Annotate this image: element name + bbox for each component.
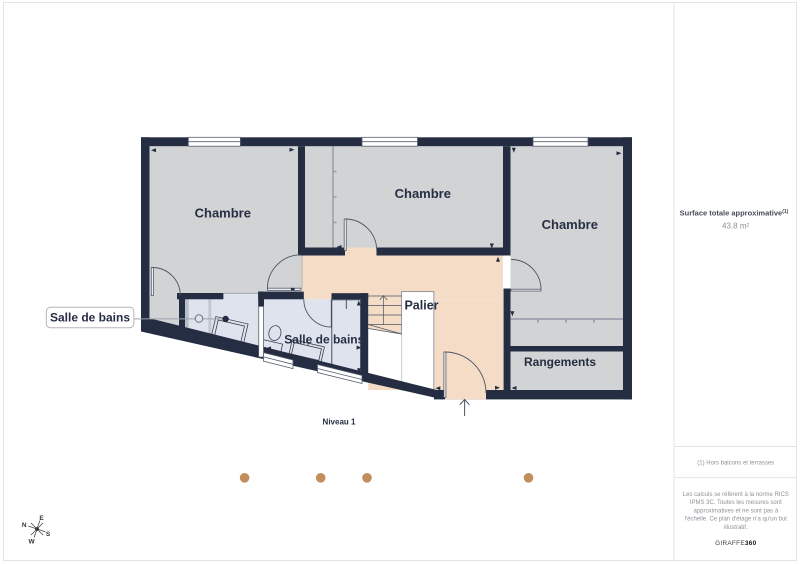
- svg-text:W: W: [29, 539, 36, 546]
- svg-text:Niveau 1: Niveau 1: [323, 417, 356, 426]
- svg-text:Les calculs se réfèrent à la n: Les calculs se réfèrent à la norme RICS: [683, 492, 789, 498]
- svg-text:Salle de bains: Salle de bains: [284, 333, 364, 347]
- svg-text:IPMS 3C. Toutes les mesures so: IPMS 3C. Toutes les mesures sont: [690, 500, 782, 506]
- svg-text:approximatives et ne sont pas: approximatives et ne sont pas à: [693, 508, 778, 514]
- svg-text:Palier: Palier: [404, 299, 438, 313]
- svg-text:Salle de bains: Salle de bains: [50, 311, 130, 325]
- svg-text:43.8 m²: 43.8 m²: [722, 222, 749, 231]
- svg-text:N: N: [22, 522, 27, 529]
- svg-text:GIRAFFE360: GIRAFFE360: [715, 540, 757, 547]
- svg-text:Rangements: Rangements: [524, 355, 596, 369]
- svg-text:l'échelle. Ce plan d'étage n'a: l'échelle. Ce plan d'étage n'a qu'un but: [685, 517, 788, 523]
- svg-text:E: E: [39, 515, 44, 522]
- svg-text:Chambre: Chambre: [195, 206, 251, 221]
- svg-text:Surface totale approximative(1: Surface totale approximative(1): [680, 209, 789, 218]
- svg-text:illustratif.: illustratif.: [724, 525, 748, 531]
- svg-text:S: S: [46, 531, 51, 538]
- svg-text:Chambre: Chambre: [542, 217, 598, 232]
- svg-text:(1) Hors balcons et terrasses: (1) Hors balcons et terrasses: [697, 460, 774, 466]
- svg-text:Chambre: Chambre: [395, 186, 451, 201]
